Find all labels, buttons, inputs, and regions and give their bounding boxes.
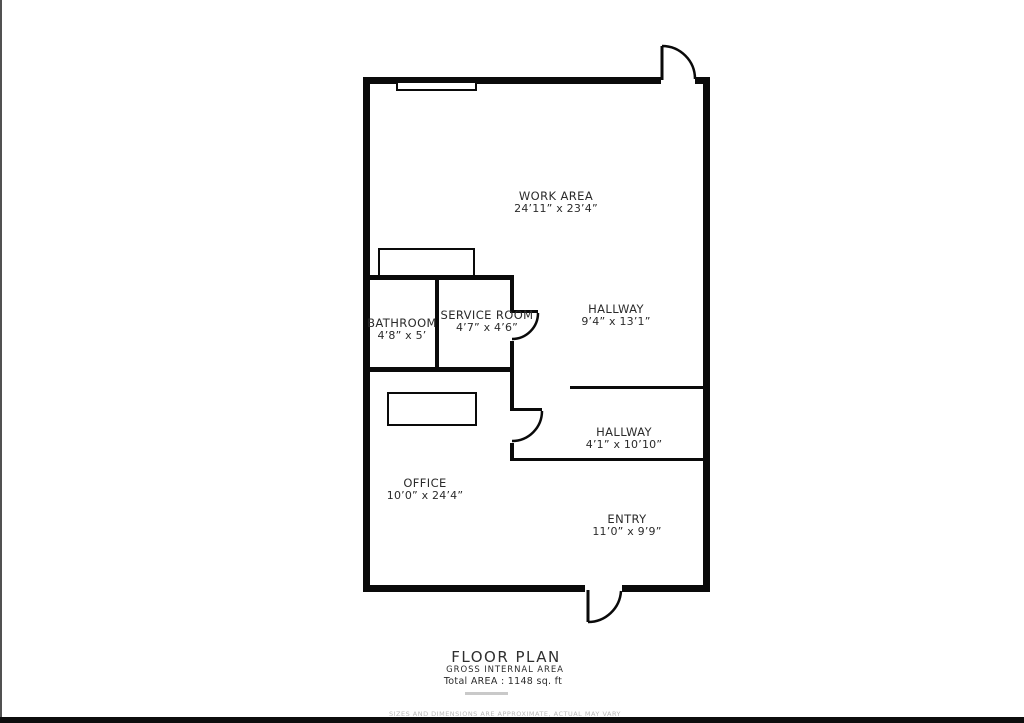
floor-plan-title: FLOOR PLAN [451,648,560,666]
faint-underline-mark [465,692,508,695]
gross-internal-area-label: GROSS INTERNAL AREA [446,665,564,675]
room-dims: 9’4” x 13’1” [581,316,650,329]
room-name: HALLWAY [586,426,663,439]
entry-door-arc [588,591,621,622]
room-dims: 4’1” x 10’10” [586,439,663,452]
wall-hallway-partial [570,386,710,389]
room-dims: 4’8” x 5’ [367,330,437,343]
top-door-arc [662,46,695,79]
floor-plan-drawing [0,0,1024,723]
room-name: OFFICE [387,477,464,490]
window-top-wall [397,82,476,90]
hallway-door-jamb-stub [510,408,542,411]
room-label-bathroom: BATHROOM 4’8” x 5’ [367,317,437,342]
room-dims: 11’0” x 9’9” [592,526,661,539]
room-name: BATHROOM [367,317,437,330]
wall-outer-bottom-left [363,585,585,592]
room-name: WORK AREA [514,190,598,203]
room-label-office: OFFICE 10’0” x 24’4” [387,477,464,502]
desk-rectangle [388,393,476,425]
room-name: HALLWAY [581,303,650,316]
room-name: SERVICE ROOM [441,309,534,322]
room-label-work-area: WORK AREA 24’11” x 23’4” [514,190,598,215]
hallway-door-arc [512,411,542,441]
total-area-value: Total AREA : 1148 sq. ft [444,676,562,687]
cabinet-rectangle [379,249,474,277]
room-label-hallway-lower: HALLWAY 4’1” x 10’10” [586,426,663,451]
room-dims: 24’11” x 23’4” [514,203,598,216]
wall-outer-right [703,77,710,592]
wall-hallway-bottom [512,458,710,461]
room-name: ENTRY [592,513,661,526]
room-dims: 4’7” x 4’6” [441,322,534,335]
room-label-service-room: SERVICE ROOM 4’7” x 4’6” [441,309,534,334]
room-label-hallway-upper: HALLWAY 9’4” x 13’1” [581,303,650,328]
room-label-entry: ENTRY 11’0” x 9’9” [592,513,661,538]
room-dims: 10’0” x 24’4” [387,490,464,503]
bottom-black-bar [0,717,1024,723]
wall-hallway-vertical-middle [510,341,514,411]
wall-outer-bottom-right [622,585,710,592]
